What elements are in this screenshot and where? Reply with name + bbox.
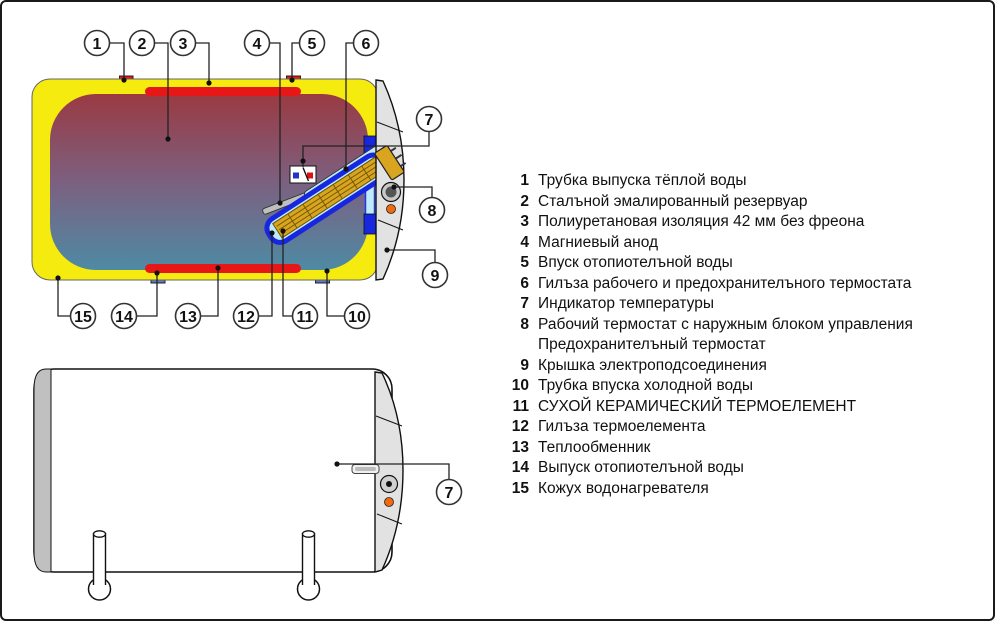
legend-item-label: Рабочий термостат с наружным блоком упра…	[538, 315, 913, 336]
anchor-dot-11	[280, 228, 285, 233]
leader-line-15	[58, 278, 71, 316]
legend-item-label: Крышка электроподсоединения	[538, 356, 767, 377]
legend-item-number: 14	[505, 458, 529, 479]
legend-item-number: 13	[505, 438, 529, 459]
legend-item-label: Гилъза рабочего и предохранителъного тер…	[538, 274, 911, 295]
legend-item-label: Индикатор температуры	[538, 294, 714, 315]
anchor-dot-14	[154, 270, 159, 275]
legend-item-label: Выпуск отопиотелъной воды	[538, 458, 744, 479]
legend-item-1: 1Трубка выпуска тёплой воды	[505, 171, 991, 192]
legend-item-number: 1	[505, 171, 529, 192]
leader-line-3	[195, 43, 209, 83]
legend-item-5: 5Впуск отопиотелъной воды	[505, 253, 991, 274]
legend-item-11: 11СУХОЙ КЕРАМИЧЕСКИЙ ТЕРМОЕЛЕМЕНТ	[505, 397, 991, 418]
legend-item-3: 3Полиуретановая изоляция 42 мм без фреон…	[505, 212, 991, 233]
callout-number-7: 7	[445, 485, 454, 502]
indicator-led	[387, 205, 396, 214]
legend-item-label: Предохранителъный термостат	[538, 335, 766, 356]
anchor-dot-9	[384, 247, 389, 252]
leader-line-1	[109, 43, 124, 80]
leader-line-9	[387, 250, 435, 263]
brand-label	[352, 465, 379, 474]
legend: 1Трубка выпуска тёплой воды2Сталъной эма…	[505, 171, 991, 499]
legend-item-label: Впуск отопиотелъной воды	[538, 253, 733, 274]
callout-number-10: 10	[348, 309, 366, 326]
legend-item-number: 15	[505, 479, 529, 500]
legend-item-number: 8	[505, 315, 529, 336]
callout-number-7: 7	[425, 112, 434, 129]
anchor-dot-2	[165, 136, 170, 141]
anchor-dot-7	[334, 461, 339, 466]
anchor-dot-6	[343, 166, 348, 171]
callout-number-12: 12	[237, 309, 255, 326]
legend-item-8-cont: Предохранителъный термостат	[505, 335, 991, 356]
legend-item-7: 7Индикатор температуры	[505, 294, 991, 315]
anchor-dot-13	[215, 265, 220, 270]
body-left-strip	[34, 369, 51, 572]
legend-item-label: Трубка впуска холодной воды	[538, 376, 753, 397]
legend-item-9: 9Крышка электроподсоединения	[505, 356, 991, 377]
legend-item-number: 11	[505, 397, 529, 418]
callout-number-5: 5	[308, 36, 317, 53]
heater-body	[34, 369, 392, 572]
leader-line-5	[292, 43, 300, 80]
legend-item-label: Кожух водонагревателя	[538, 479, 709, 500]
anchor-dot-4	[277, 200, 282, 205]
anchor-dot-12	[269, 230, 274, 235]
legend-item-6: 6Гилъза рабочего и предохранителъного те…	[505, 274, 991, 295]
anchor-dot-7	[300, 158, 305, 163]
legend-item-number: 12	[505, 417, 529, 438]
legend-item-label: СУХОЙ КЕРАМИЧЕСКИЙ ТЕРМОЕЛЕМЕНТ	[538, 397, 856, 418]
legend-item-number: 7	[505, 294, 529, 315]
callout-number-13: 13	[179, 309, 197, 326]
legend-item-label: Сталъной эмалированный резервуар	[538, 192, 807, 213]
legend-item-number: 4	[505, 233, 529, 254]
legend-item-12: 12Гилъза термоелемента	[505, 417, 991, 438]
heat-exchanger-bottom-pipe	[145, 264, 301, 273]
callout-number-14: 14	[115, 309, 133, 326]
anchor-dot-10	[324, 268, 329, 273]
legend-item-10: 10Трубка впуска холодной воды	[505, 376, 991, 397]
legend-item-13: 13Теплообменник	[505, 438, 991, 459]
anchor-dot-1	[121, 77, 126, 82]
callout-number-8: 8	[428, 203, 437, 220]
legend-item-number: 5	[505, 253, 529, 274]
diagram-canvas: 123456789101112131415	[0, 0, 995, 621]
legend-item-label: Магниевый анод	[538, 233, 658, 254]
exterior-view: 7	[34, 369, 462, 600]
legend-item-label: Теплообменник	[538, 438, 650, 459]
legend-item-number: 3	[505, 212, 529, 233]
callout-number-9: 9	[431, 268, 440, 285]
legend-item-2: 2Сталъной эмалированный резервуар	[505, 192, 991, 213]
legend-item-number: 10	[505, 376, 529, 397]
anchor-dot-5	[289, 77, 294, 82]
anchor-dot-15	[55, 275, 60, 280]
anchor-dot-8	[391, 184, 396, 189]
legend-item-15: 15Кожух водонагревателя	[505, 479, 991, 500]
connection-pipe-left	[94, 531, 106, 585]
callout-number-4: 4	[253, 36, 262, 53]
exterior-thermostat-knob	[381, 476, 398, 493]
callout-number-6: 6	[362, 36, 371, 53]
legend-item-label: Полиуретановая изоляция 42 мм без фреона	[538, 212, 864, 233]
legend-item-number: 2	[505, 192, 529, 213]
callout-number-3: 3	[179, 36, 188, 53]
callout-number-1: 1	[93, 36, 102, 53]
temperature-gauge	[290, 166, 316, 183]
thermostat-knob	[382, 183, 401, 202]
legend-item-label: Трубка выпуска тёплой воды	[538, 171, 746, 192]
callout-number-2: 2	[138, 36, 147, 53]
legend-item-number: 9	[505, 356, 529, 377]
legend-item-number: 6	[505, 274, 529, 295]
legend-item-4: 4Магниевый анод	[505, 233, 991, 254]
callout-number-11: 11	[297, 309, 314, 326]
anchor-dot-3	[206, 80, 211, 85]
exterior-indicator-led	[385, 498, 394, 507]
legend-item-8: 8Рабочий термостат с наружным блоком упр…	[505, 315, 991, 336]
legend-item-label: Гилъза термоелемента	[538, 417, 706, 438]
callout-number-15: 15	[74, 309, 92, 326]
cross-section-view: 123456789101112131415	[32, 31, 448, 329]
connection-pipe-right	[303, 531, 315, 585]
legend-item-14: 14Выпуск отопиотелъной воды	[505, 458, 991, 479]
